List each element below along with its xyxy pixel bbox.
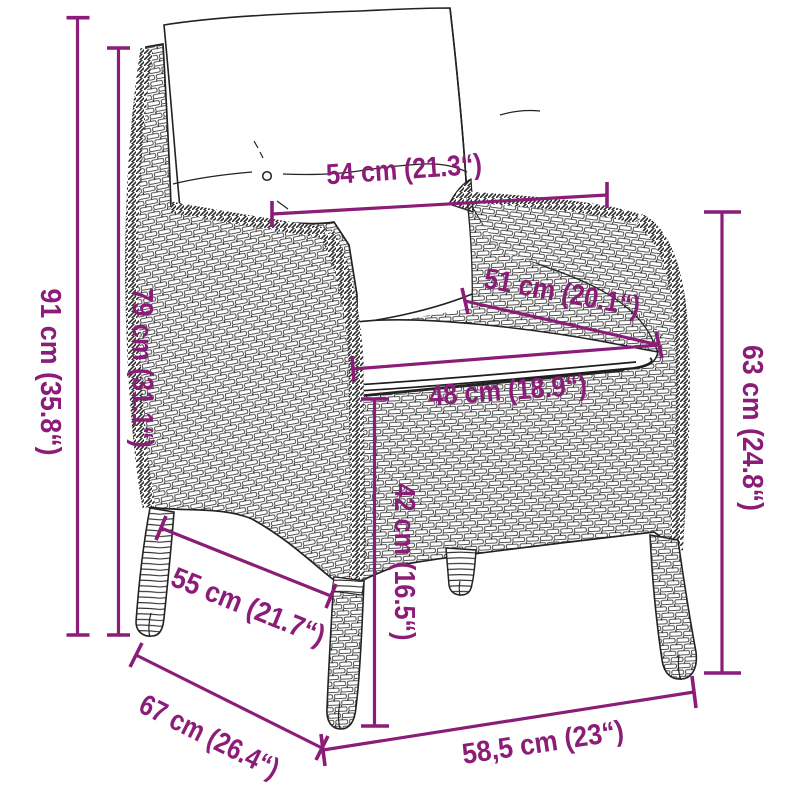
svg-text:63 cm (24.8“): 63 cm (24.8“): [736, 345, 768, 511]
svg-text:91 cm (35.8“): 91 cm (35.8“): [34, 289, 66, 456]
svg-text:79 cm (31.1“): 79 cm (31.1“): [126, 288, 158, 448]
svg-text:42 cm (16.5“): 42 cm (16.5“): [388, 484, 420, 641]
